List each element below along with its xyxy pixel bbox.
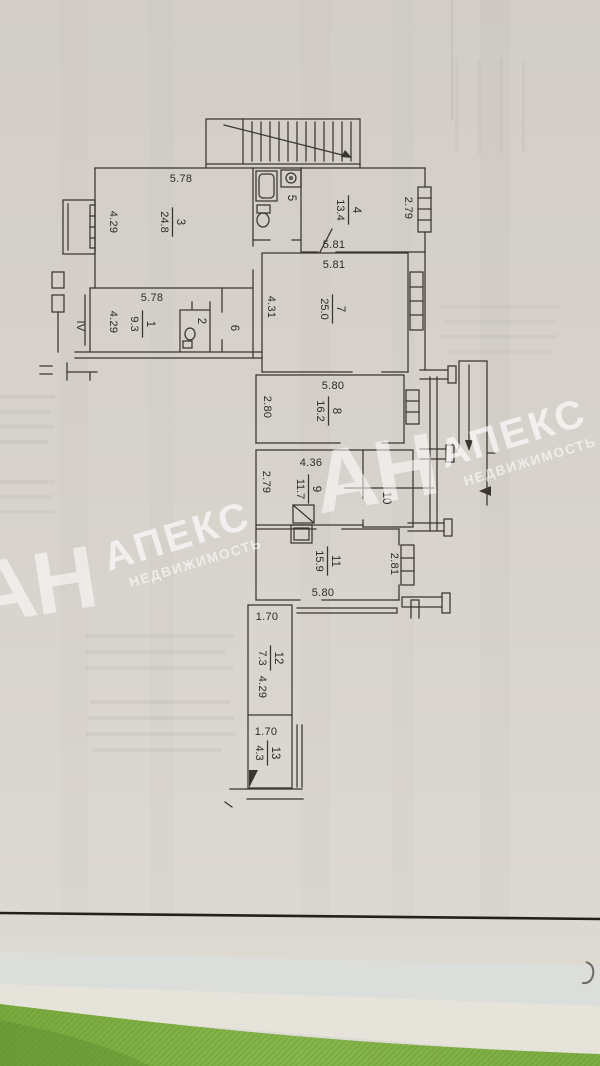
room-3-area: 24.8 xyxy=(158,211,170,232)
dim-room8-left: 2.80 xyxy=(261,396,273,419)
room-8-area: 16.2 xyxy=(314,400,326,421)
dim-room12-left: 4.29 xyxy=(256,676,268,699)
room-9-area: 11.7 xyxy=(294,479,306,500)
room-7-number: 7 xyxy=(334,306,346,312)
dim-room13-top: 1.70 xyxy=(255,726,278,738)
room-13-area: 4.3 xyxy=(253,745,265,760)
room-label-6: 6 xyxy=(228,325,240,331)
room-6-number: 6 xyxy=(228,325,240,331)
paper-background xyxy=(0,0,600,1066)
watermark-initials-left: АН xyxy=(0,526,102,643)
dim-room9-left: 2.79 xyxy=(260,471,272,494)
floor-plan-photo: 5.78 4.29 2.79 5.81 5.81 4.31 5.78 4.29 … xyxy=(0,0,600,1066)
dim-room7-top: 5.81 xyxy=(323,259,346,271)
dim-room3-top: 5.78 xyxy=(170,173,193,185)
room-13-number: 13 xyxy=(269,747,281,760)
dim-room1-left: 4.29 xyxy=(107,311,119,334)
room-4-area: 13.4 xyxy=(334,199,346,220)
entrance-label: IV xyxy=(74,321,86,332)
dim-room7-left: 4.31 xyxy=(265,296,277,319)
room-label-5: 5 xyxy=(285,195,297,201)
room-8-number: 8 xyxy=(330,408,342,414)
dim-room1-top: 5.78 xyxy=(141,292,164,304)
room-5-number: 5 xyxy=(285,195,297,201)
room-11-number: 11 xyxy=(329,555,341,567)
dim-room3-left: 4.29 xyxy=(107,211,119,234)
room-12-number: 12 xyxy=(272,652,284,665)
room-1-area: 9.3 xyxy=(128,316,140,331)
dim-room4-bottom: 5.81 xyxy=(323,239,346,251)
room-2-number: 2 xyxy=(195,318,207,324)
room-3-number: 3 xyxy=(174,219,186,225)
room-1-number: 1 xyxy=(144,321,156,327)
dim-room12-top: 1.70 xyxy=(256,611,279,623)
room-12-area: 7.3 xyxy=(256,650,268,665)
dim-room8-top: 5.80 xyxy=(322,380,345,392)
dim-room11-right: 2.81 xyxy=(388,553,400,576)
dim-room4-right: 2.79 xyxy=(402,197,414,220)
room-4-number: 4 xyxy=(350,207,362,214)
watermark-initials-right: АН xyxy=(305,414,443,533)
room-label-2: 2 xyxy=(195,318,207,324)
room-11-area: 15.9 xyxy=(313,550,325,571)
room-7-area: 25.0 xyxy=(318,298,330,319)
dim-room11-bottom: 5.80 xyxy=(312,587,335,599)
